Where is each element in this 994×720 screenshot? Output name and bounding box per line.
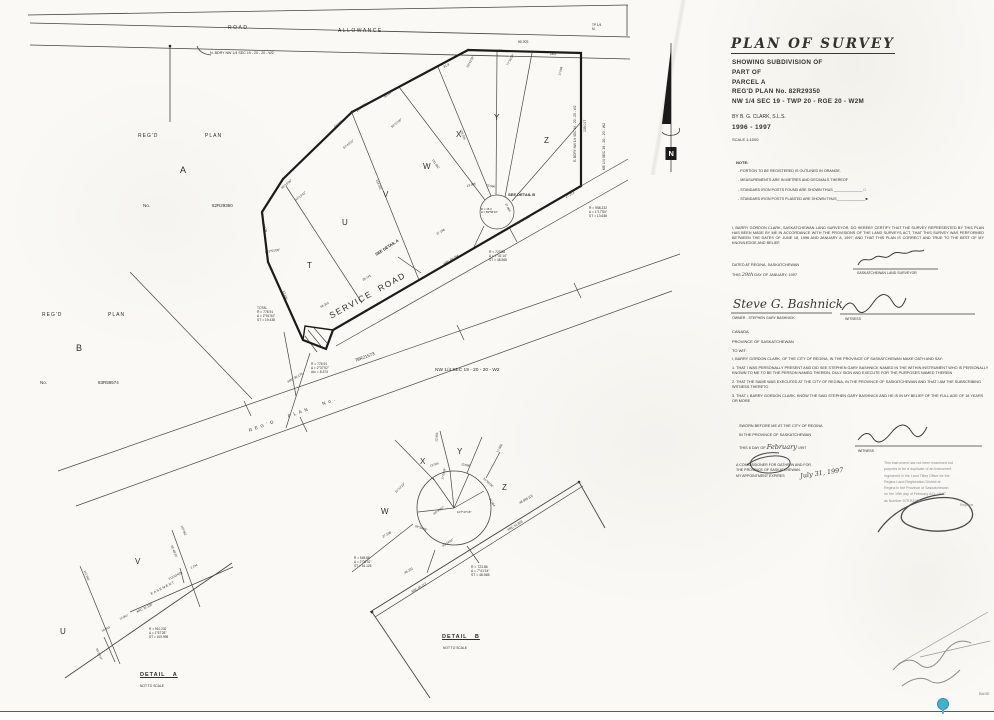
scale-label: SCALE 1:1000 <box>732 137 758 142</box>
map-pin-icon[interactable] <box>937 698 949 718</box>
sheet-bottom-edge <box>0 711 994 712</box>
dimension-annotation: R = 15.0 Δ = 89°58'16" <box>481 208 498 215</box>
detail-b-lot-x: X <box>420 457 425 467</box>
sworn-year: 1997 <box>797 446 807 450</box>
dimension-annotation: No. <box>143 203 150 208</box>
dimension-annotation: R = 723.86 Δ = 7°41'14" ST = 48.565 <box>489 251 507 263</box>
sworn-of: DAY OF <box>751 446 767 450</box>
surveyor-title: SASKATCHEWAN LAND SURVEYOR <box>857 271 917 275</box>
dimension-annotation: PLAN <box>205 133 222 139</box>
title-subtitle-line: NW 1/4 SEC 19 - TWP 20 - RGE 20 - W2M <box>732 97 864 107</box>
jurisdiction-line: PROVINCE OF SASKATCHEWAN <box>732 339 794 344</box>
dimension-annotation: 139.017 <box>583 120 587 132</box>
detail-a-lot-v: V <box>135 557 140 567</box>
affidavit-intro: I, BARRY GORDON CLARK, OF THE CITY OF RE… <box>732 357 989 362</box>
title-subtitle-line: SHOWING SUBDIVISION OF <box>732 58 864 68</box>
title-subtitle-line: PARCEL A <box>732 78 864 88</box>
registered-parcel-boundary <box>262 50 581 349</box>
lot-label-u: U <box>342 218 348 228</box>
sworn-line-2: IN THE PROVINCE OF SASKATCHEWAN <box>739 433 811 437</box>
surveyor-certification: I, BARRY GORDON CLARK, SASKATCHEWAN LAND… <box>732 226 984 247</box>
dimension-annotation: 28.0 <box>550 53 556 57</box>
dated-this: THIS <box>732 273 742 277</box>
detail-b-title: DETAIL B <box>442 634 480 641</box>
notes-heading: NOTE: <box>736 160 748 165</box>
north-label: N <box>669 149 674 158</box>
registration-stamp: This instrument has not been examined bu… <box>884 460 990 504</box>
byline: BY B. G. CLARK, S.L.S. <box>732 114 786 120</box>
survey-sheet: ROADALLOWANCETP 1/4 MN. BDRY NW 1/4 SEC … <box>0 0 994 711</box>
affidavit-item: 1. THAT I WAS PERSONALLY PRESENT AND DID… <box>732 366 989 376</box>
lot-label-y: Y <box>494 113 499 123</box>
lot-label-t: T <box>307 261 312 271</box>
detail-a-lot-u: U <box>60 627 66 637</box>
parcel-b-plan-number: 83R59574 <box>98 380 119 385</box>
sworn-witness-signature <box>855 425 982 446</box>
ne-quarter-label: NE 1/4 SEC 19 - 20 - 20 - W2 <box>602 123 606 170</box>
detail-b-scale: NOT TO SCALE <box>443 647 467 651</box>
parcel-b-label: B <box>76 343 82 354</box>
dimension-annotation: R = 910.232 Δ = 1°57'28" ST = 109.998 <box>149 628 168 640</box>
dated-line: DATED AT REGINA, SASKATCHEWAN <box>732 263 799 267</box>
allowance-label: ALLOWANCE <box>338 28 383 34</box>
dimension-annotation: 107°47'16" <box>457 511 472 515</box>
page-title: PLAN OF SURVEY <box>731 36 895 54</box>
road-label: ROAD <box>228 25 248 31</box>
dimension-annotation: R = 723.86 Δ = 7°41'14" ST = 48.565 <box>471 565 490 577</box>
jurisdiction-line: TO WIT: <box>732 348 794 353</box>
witness-signature <box>840 294 975 314</box>
dated-day-line: THIS 29th DAY OF JANUARY, 1997 <box>732 272 797 278</box>
detail-a-title: DETAIL A <box>140 672 178 679</box>
note-item: - STANDARD IRON POSTS FOUND ARE SHOWN TH… <box>738 188 868 192</box>
sworn-month-hand: February <box>767 443 797 451</box>
years: 1996 - 1997 <box>732 124 771 131</box>
dimension-annotation: 91.803 <box>492 49 503 53</box>
note-item: - STANDARD IRON POSTS PLANTED ARE SHOWN … <box>738 197 868 201</box>
affidavit-item: 3. THAT I, BARRY GORDON CLARK, KNOW THE … <box>732 394 989 404</box>
map-pin-tail <box>942 707 945 714</box>
detail-a-scale: NOT TO SCALE <box>140 685 164 689</box>
dimension-annotation: TOTAL R = 778.91 Δ = 2°51'54" ST = 19.43… <box>257 307 275 323</box>
witness-label: WITNESS <box>845 317 861 321</box>
title-subtitle-line: PART OF <box>732 68 864 78</box>
dimension-annotation: No. <box>40 380 47 385</box>
base-label: BASE <box>979 691 990 696</box>
lot-label-z: Z <box>544 136 549 146</box>
dimension-annotation: R = 545.88 Δ = 2°08'31" ST = 16.125 <box>354 557 371 569</box>
dimension-annotation: REG'D <box>42 312 62 318</box>
affidavit-items: 1. THAT I WAS PERSONALLY PRESENT AND DID… <box>732 366 989 404</box>
owner-signature: Steve G. Bashnick <box>733 297 843 311</box>
dimension-annotation: REG'D <box>138 133 158 139</box>
jurisdiction-lines: CANADAPROVINCE OF SASKATCHEWANTO WIT: <box>732 329 794 358</box>
owner-label: OWNER - STEPHEN GARY BASHNICK <box>732 316 795 320</box>
affidavit: I, BARRY GORDON CLARK, OF THE CITY OF RE… <box>732 357 989 407</box>
dimension-annotation: 80.303 <box>518 40 529 44</box>
lot-label-v: V <box>383 190 388 200</box>
north-boundary-label: N. BDRY NW 1/4 SEC 19 - 20 - 20 - W2 <box>210 51 274 55</box>
nw-quarter-label: NW 1/4 SEC 19 - 20 - 20 - W2 <box>435 368 500 374</box>
sworn-line-1: SWORN BEFORE ME AT THE CITY OF REGINA <box>739 424 822 428</box>
affidavit-item: 2. THAT THE SAME WAS EXECUTED AT THE CIT… <box>732 380 989 390</box>
surveyor-signature <box>853 250 938 269</box>
dimension-annotation: R = 958.232 Δ = 1°17'50" ST = 13.638 <box>589 207 607 219</box>
dated-rest: DAY OF JANUARY, 1997 <box>753 273 797 277</box>
sworn-witness-label: WITNESS <box>858 449 874 453</box>
detail-b-lot-z: Z <box>502 483 507 493</box>
dimension-annotation: R = 778.91 Δ = 2°37'02" Arc = 8.373 <box>311 363 329 375</box>
note-item: - PORTION TO BE REGISTERED IS OUTLINED I… <box>738 169 868 173</box>
dimension-annotation: PLAN <box>108 312 125 318</box>
see-detail-b: SEE DETAIL B <box>508 193 535 198</box>
sworn-date-line: THIS 6 DAY OF February 1997 <box>739 443 806 451</box>
parcel-a-label: A <box>180 165 186 176</box>
detail-b-lot-w: W <box>381 507 389 517</box>
detail-b-lot-y: Y <box>457 447 462 457</box>
dated-day-hand: 29th <box>742 272 754 278</box>
lot-label-w: W <box>423 162 431 172</box>
notes-list: - PORTION TO BE REGISTERED IS OUTLINED I… <box>738 169 868 207</box>
dimension-annotation: TP 1/4 M <box>592 24 601 32</box>
title-subtitle: SHOWING SUBDIVISION OFPART OFPARCEL AREG… <box>732 58 864 107</box>
parcel-a-plan-number: 82R29350 <box>212 203 233 208</box>
east-boundary-label: E. BDRY NW 1/4 SEC 19 - 20 - 20 - W2 <box>574 106 578 162</box>
stamp-line: as Number 97R B1305 <box>884 498 990 504</box>
title-subtitle-line: REG'D PLAN No. 82R29350 <box>732 87 864 97</box>
registrar-label: Registrar <box>960 503 973 507</box>
note-item: - MEASUREMENTS ARE IN METRES AND DECIMAL… <box>738 178 868 182</box>
handwritten-scrawl <box>893 612 990 686</box>
jurisdiction-line: CANADA <box>732 329 794 334</box>
sworn-this: THIS <box>739 446 749 450</box>
